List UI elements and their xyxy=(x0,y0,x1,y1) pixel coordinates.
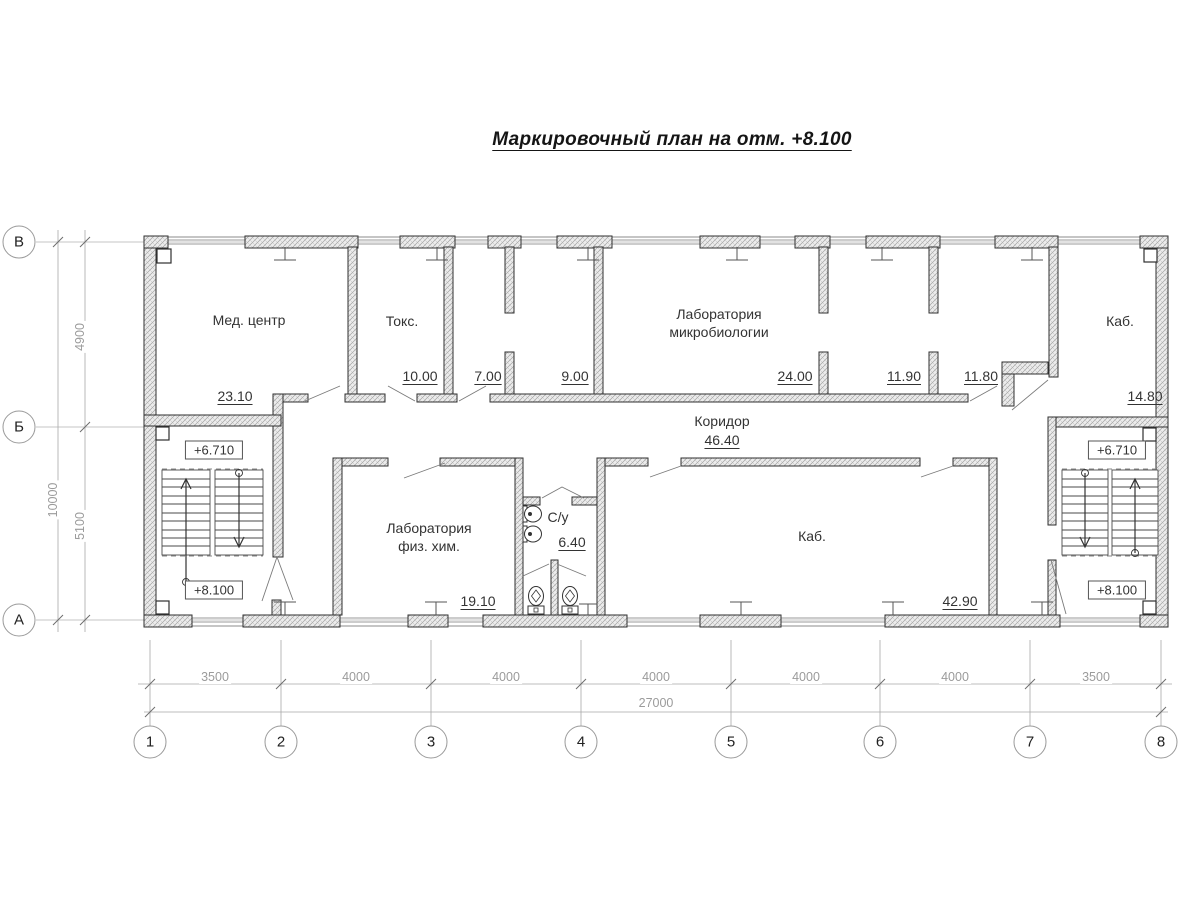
area-label-room-9: 9.00 xyxy=(561,368,588,384)
window-lines xyxy=(144,237,1168,626)
room-label-toks: Токс. xyxy=(386,313,418,329)
area-label-room-1180: 11.80 xyxy=(964,368,998,384)
area-label-su: 6.40 xyxy=(558,534,585,550)
dim-span-2-3: 4000 xyxy=(340,670,372,684)
interior-walls xyxy=(144,247,1168,615)
axis-row-b: Б xyxy=(14,419,24,436)
axis-col-7: 7 xyxy=(1026,734,1034,751)
dim-span-5-6: 4000 xyxy=(790,670,822,684)
exterior-walls xyxy=(144,236,1168,627)
elevation-mark-left-upper: +6.710 xyxy=(185,441,243,460)
room-label-med-center: Мед. центр xyxy=(213,312,286,328)
room-label-koridor: Коридор xyxy=(694,413,749,429)
elevation-mark-right-lower: +8.100 xyxy=(1088,581,1146,600)
axis-col-1: 1 xyxy=(146,734,154,751)
area-label-koridor: 46.40 xyxy=(704,432,739,448)
area-label-lab-micro: 24.00 xyxy=(777,368,812,384)
dim-span-4-5: 4000 xyxy=(640,670,672,684)
area-label-room-1190: 11.90 xyxy=(887,368,921,384)
area-label-med-center: 23.10 xyxy=(217,388,252,404)
dim-total-width: 27000 xyxy=(637,696,676,710)
dim-span-7-8: 3500 xyxy=(1080,670,1112,684)
left-staircase xyxy=(162,469,263,586)
room-label-lab-micro: Лаборатория микробиологии xyxy=(657,305,782,341)
axis-row-v: В xyxy=(14,234,24,251)
axis-col-8: 8 xyxy=(1157,734,1165,751)
dim-span-v-b: 4900 xyxy=(73,321,87,353)
corner-columns xyxy=(156,249,1157,614)
area-label-kab-bottom: 42.90 xyxy=(942,593,977,609)
area-label-room-7: 7.00 xyxy=(474,368,501,384)
axis-row-a: А xyxy=(14,612,24,629)
area-label-lab-fiz: 19.10 xyxy=(460,593,495,609)
dim-total-height: 10000 xyxy=(46,481,60,520)
area-label-toks: 10.00 xyxy=(402,368,437,384)
dim-span-b-a: 5100 xyxy=(73,510,87,542)
axis-col-6: 6 xyxy=(876,734,884,751)
elevation-mark-right-upper: +6.710 xyxy=(1088,441,1146,460)
area-label-kab-top: 14.80 xyxy=(1127,388,1162,404)
room-label-lab-fiz: Лаборатория физ. хим. xyxy=(374,519,484,555)
axis-col-2: 2 xyxy=(277,734,285,751)
room-label-kab-top: Каб. xyxy=(1106,313,1134,329)
dim-span-6-7: 4000 xyxy=(939,670,971,684)
room-label-su: С/у xyxy=(548,509,569,525)
right-staircase xyxy=(1062,469,1158,557)
sink-fixtures xyxy=(523,506,542,542)
axis-col-3: 3 xyxy=(427,734,435,751)
axis-col-5: 5 xyxy=(727,734,735,751)
dim-span-3-4: 4000 xyxy=(490,670,522,684)
drawing-title: Маркировочный план на отм. +8.100 xyxy=(492,129,851,151)
room-label-kab-bottom: Каб. xyxy=(798,528,826,544)
dim-span-1-2: 3500 xyxy=(199,670,231,684)
elevation-mark-left-lower: +8.100 xyxy=(185,581,243,600)
door-swings xyxy=(262,380,1066,614)
axis-col-4: 4 xyxy=(577,734,585,751)
floor-plan-sheet: Маркировочный план на отм. +8.100 Мед. ц… xyxy=(0,0,1200,900)
